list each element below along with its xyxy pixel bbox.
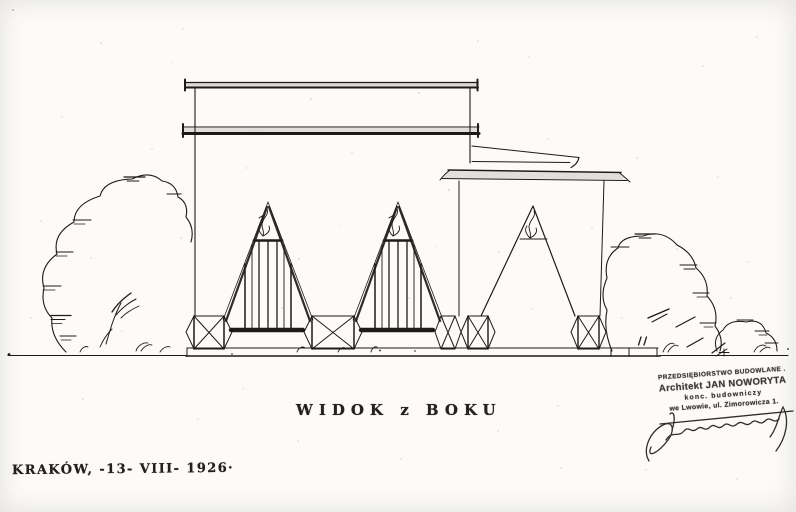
drawing-title: WIDOK z BOKU — [296, 401, 488, 419]
wing-gable — [481, 206, 575, 316]
ground-line — [8, 353, 788, 356]
foliage-ticks — [611, 234, 716, 327]
branch-strokes — [100, 293, 139, 347]
tree-right-large — [603, 234, 727, 356]
wing-roof — [472, 146, 579, 168]
cornice-band-upper — [185, 80, 478, 91]
x-brace-3 — [435, 316, 461, 349]
grass-tufts — [80, 343, 789, 356]
tick-mark — [639, 337, 647, 345]
tree-left — [43, 175, 193, 352]
cornice-band-lower — [183, 124, 479, 137]
x-brace-4 — [461, 316, 495, 349]
elevation-drawing — [0, 0, 796, 512]
right-wing — [440, 170, 630, 316]
gable-center — [353, 202, 443, 330]
location-date: KRAKÓW, -13- VIII- 1926· — [12, 461, 234, 478]
apex-ornament-wing — [526, 211, 537, 238]
x-brace-5 — [571, 316, 606, 349]
scanned-drawing-sheet: WIDOK z BOKU KRAKÓW, -13- VIII- 1926· PR… — [0, 0, 796, 512]
foliage-ticks — [43, 177, 181, 340]
tree-right-small — [715, 320, 778, 351]
branch-strokes — [648, 309, 727, 356]
x-brace-fence — [186, 316, 606, 349]
base-plinth — [187, 337, 658, 357]
x-brace-2 — [304, 316, 362, 349]
architect-signature — [646, 407, 793, 461]
gable-left — [223, 202, 313, 330]
